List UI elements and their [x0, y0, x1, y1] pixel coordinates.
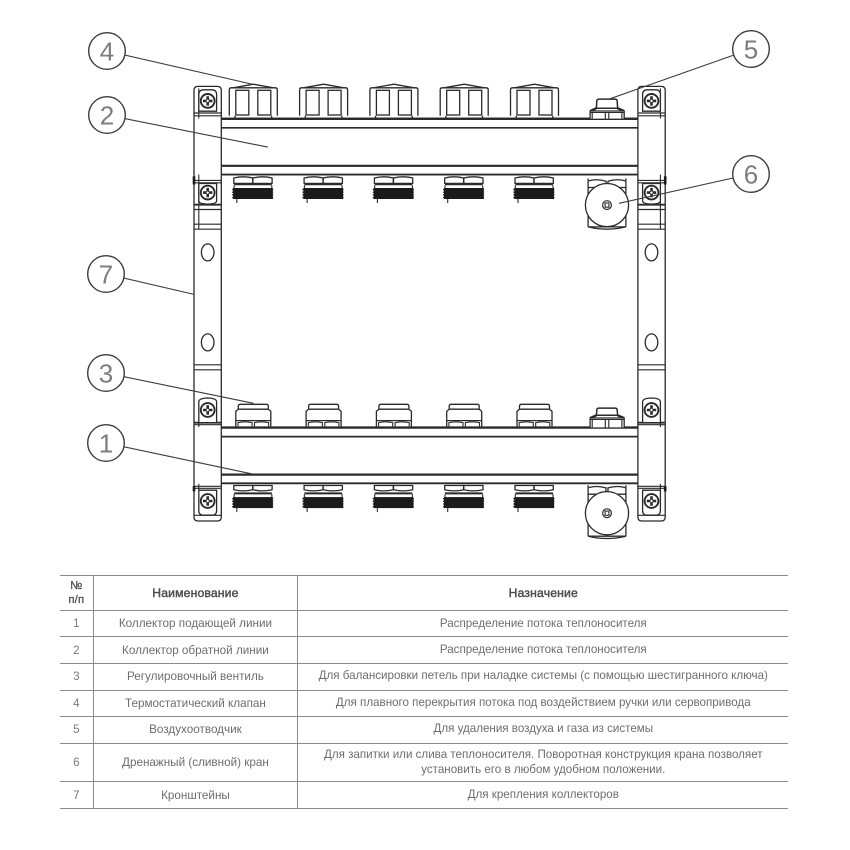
svg-text:7: 7 — [99, 259, 113, 289]
svg-text:2: 2 — [100, 100, 114, 130]
svg-text:4: 4 — [100, 36, 114, 66]
svg-text:1: 1 — [99, 428, 113, 458]
svg-text:6: 6 — [744, 159, 758, 189]
svg-text:5: 5 — [744, 34, 758, 64]
svg-text:3: 3 — [99, 358, 113, 388]
